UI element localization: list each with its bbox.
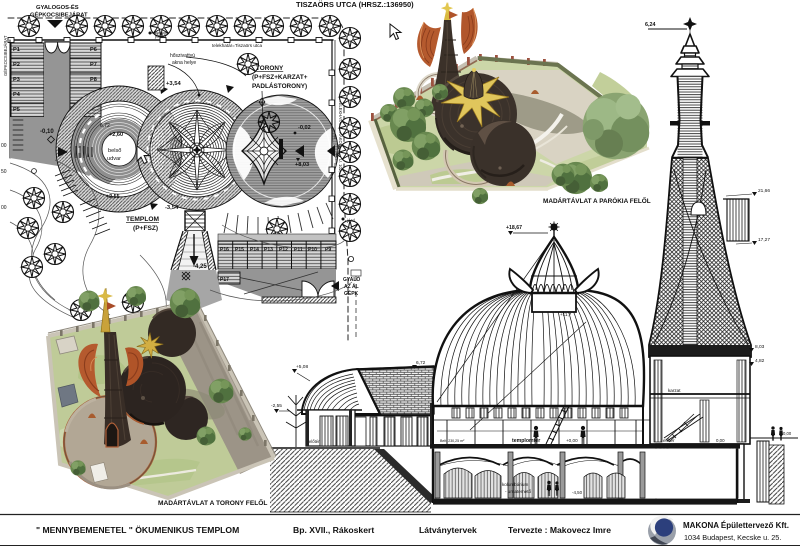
- svg-text:PADLÁSTORONY): PADLÁSTORONY): [252, 81, 307, 90]
- svg-text:- urnatemető: - urnatemető: [505, 489, 531, 494]
- svg-text:udvar: udvar: [107, 156, 121, 162]
- svg-text:21,66: 21,66: [758, 188, 770, 194]
- svg-text:P2: P2: [13, 62, 20, 68]
- svg-text:50: 50: [1, 169, 7, 175]
- svg-text:+0,00: +0,00: [566, 438, 578, 443]
- svg-text:P10: P10: [308, 247, 317, 253]
- svg-text:(P+FSZ+KARZAT+: (P+FSZ+KARZAT+: [252, 74, 308, 81]
- svg-text:+18,67: +18,67: [506, 225, 522, 231]
- svg-text:6,72: 6,72: [100, 123, 110, 129]
- svg-text:+5,08: +5,08: [296, 364, 308, 370]
- svg-text:+3,54: +3,54: [166, 81, 181, 87]
- svg-text:P6: P6: [90, 47, 97, 53]
- svg-text:4,82: 4,82: [755, 358, 765, 364]
- svg-text:P3: P3: [13, 77, 20, 83]
- svg-text:P17: P17: [220, 277, 229, 283]
- svg-text:-3,54: -3,54: [165, 205, 179, 211]
- svg-text:P14: P14: [250, 247, 259, 253]
- svg-text:+2,55: +2,55: [106, 194, 120, 200]
- svg-text:Belt: 230,25 m²: Belt: 230,25 m²: [440, 439, 465, 443]
- svg-text:járd: járd: [346, 218, 355, 223]
- svg-text:P12: P12: [279, 247, 288, 253]
- svg-text:-4,25: -4,25: [193, 264, 207, 270]
- svg-text:Látványtervek: Látványtervek: [419, 525, 477, 535]
- svg-text:-0,10: -0,10: [40, 129, 54, 135]
- svg-text:P15: P15: [235, 247, 244, 253]
- svg-text:akna helye: akna helye: [172, 60, 196, 66]
- svg-text:8,03: 8,03: [755, 344, 765, 350]
- svg-text:6,24: 6,24: [645, 22, 656, 28]
- svg-text:1034 Budapest, Kecske u. 25.: 1034 Budapest, Kecske u. 25.: [684, 533, 781, 542]
- svg-text:00: 00: [1, 205, 7, 211]
- svg-text:belső: belső: [108, 148, 121, 154]
- svg-text:P1: P1: [13, 47, 20, 53]
- svg-text:TORONY: TORONY: [256, 65, 284, 72]
- svg-text:AZ ÁL: AZ ÁL: [344, 283, 359, 290]
- svg-text:+2,60: +2,60: [109, 132, 123, 138]
- svg-text:-0,02: -0,02: [298, 125, 311, 131]
- svg-text:00: 00: [1, 143, 7, 149]
- svg-text:hőszivattyú: hőszivattyú: [170, 53, 195, 59]
- svg-text:0,00: 0,00: [716, 438, 725, 443]
- svg-text:0,00: 0,00: [783, 431, 792, 436]
- svg-text:kolumbárium: kolumbárium: [502, 482, 528, 487]
- svg-text:+8,03: +8,03: [295, 162, 309, 168]
- svg-text:17,27: 17,27: [758, 237, 770, 243]
- svg-text:-4,50: -4,50: [572, 490, 583, 495]
- svg-text:TEMPLOM: TEMPLOM: [126, 216, 159, 223]
- svg-text:6,72: 6,72: [416, 360, 426, 366]
- svg-text:előtér: előtér: [663, 438, 675, 443]
- svg-text:P13: P13: [264, 247, 273, 253]
- svg-text:" MENNYBEMENETEL " ÖKUMENIKUS: " MENNYBEMENETEL " ÖKUMENIKUS TEMPLOM: [36, 525, 239, 535]
- svg-text:-2,55: -2,55: [271, 403, 282, 409]
- svg-text:GYALOGOS-ÉS: GYALOGOS-ÉS: [36, 3, 79, 11]
- svg-text:TISZAÖRS UTCA (HRSZ.:136950): TISZAÖRS UTCA (HRSZ.:136950): [296, 0, 414, 9]
- svg-text:templomtér: templomtér: [512, 438, 540, 444]
- svg-text:P9: P9: [325, 247, 331, 253]
- svg-text:MADÁRTÁVLAT A TORONY FELŐL: MADÁRTÁVLAT A TORONY FELŐL: [158, 498, 267, 507]
- svg-text:+11,7: +11,7: [560, 312, 572, 317]
- svg-text:telekhatár=Tiszaörs utca: telekhatár=Tiszaörs utca: [212, 43, 262, 48]
- svg-text:karzat: karzat: [668, 388, 681, 393]
- svg-text:előtér: előtér: [309, 439, 320, 444]
- svg-text:P8: P8: [90, 77, 97, 83]
- svg-text:MADÁRTÁVLAT A PARÓKIA FELŐL: MADÁRTÁVLAT A PARÓKIA FELŐL: [543, 196, 651, 205]
- svg-text:MAKONA Épülettervező Kft.: MAKONA Épülettervező Kft.: [683, 521, 789, 530]
- svg-text:P5: P5: [13, 107, 20, 113]
- svg-text:Tervezte : Makovecz Imre: Tervezte : Makovecz Imre: [508, 525, 611, 535]
- svg-text:GÉPKOCSIBEJÁRAT: GÉPKOCSIBEJÁRAT: [3, 35, 8, 76]
- svg-text:TELEKHATÁR = RÁKOSKERT U. 102,: TELEKHATÁR = RÁKOSKERT U. 102,98: [338, 100, 343, 178]
- svg-text:P4: P4: [13, 92, 21, 98]
- svg-text:P7: P7: [90, 62, 97, 68]
- svg-text:P16: P16: [220, 247, 229, 253]
- svg-text:(P+FSZ): (P+FSZ): [133, 225, 158, 232]
- svg-text:Bp. XVII., Rákoskert: Bp. XVII., Rákoskert: [293, 525, 374, 535]
